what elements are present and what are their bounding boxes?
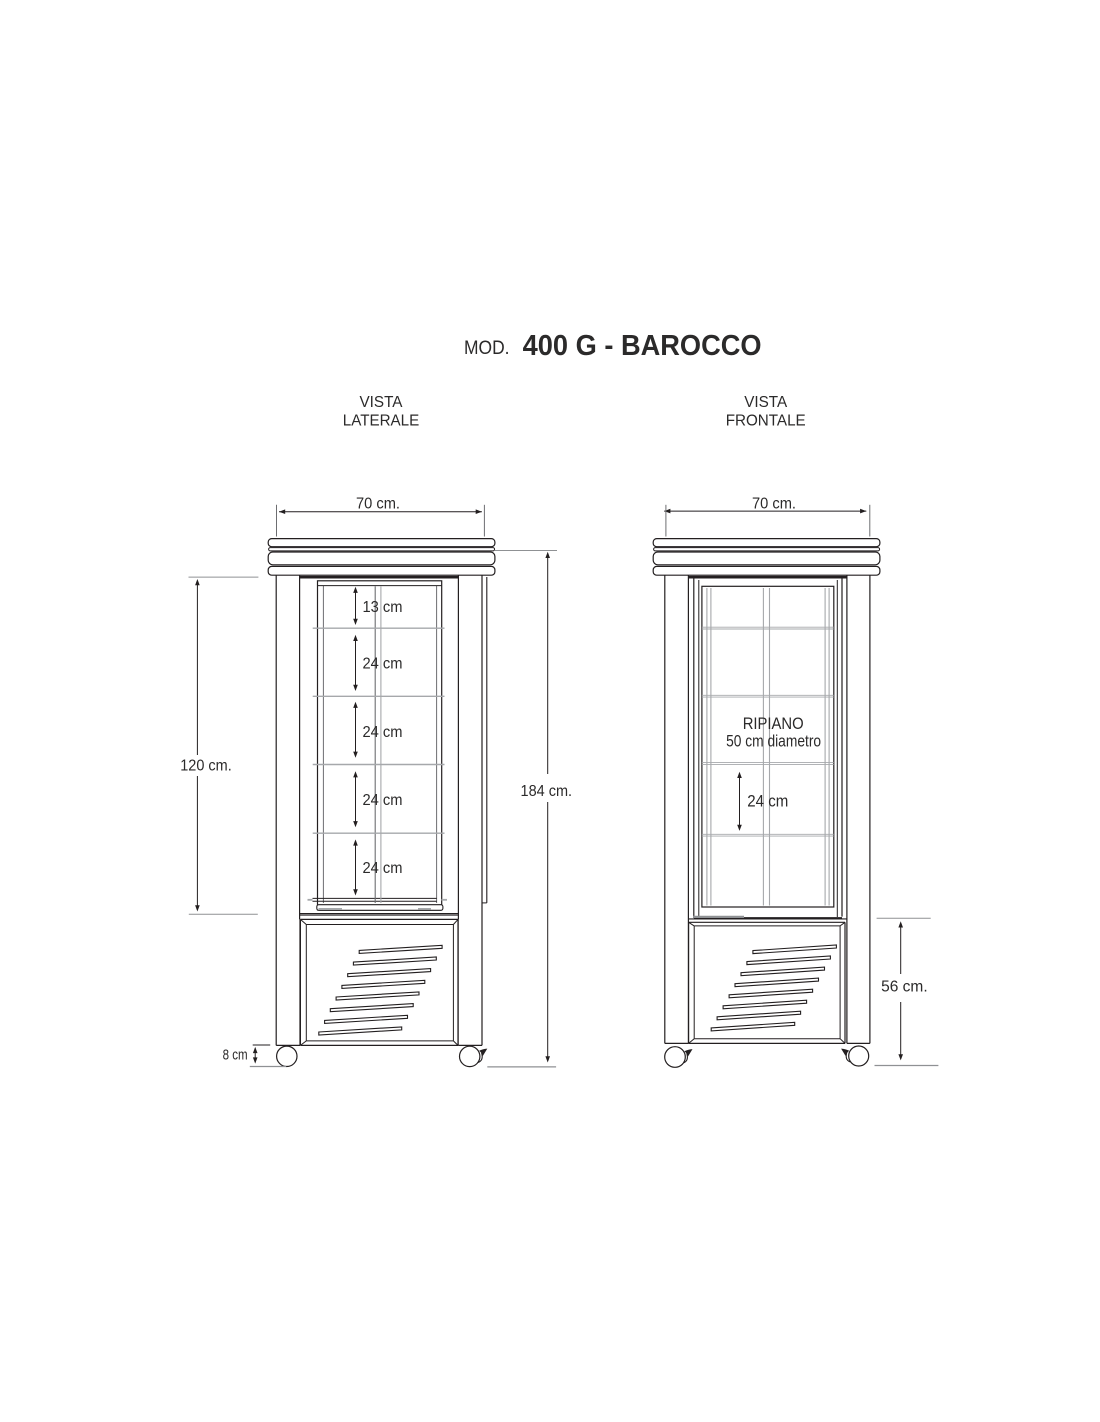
svg-text:24 cm: 24 cm [747,792,788,811]
svg-text:24 cm: 24 cm [363,860,403,877]
svg-text:70 cm.: 70 cm. [356,496,400,513]
svg-text:24 cm: 24 cm [363,656,403,673]
svg-text:24 cm: 24 cm [363,724,403,741]
svg-text:RIPIANO: RIPIANO [743,714,804,733]
svg-text:FRONTALE: FRONTALE [726,413,806,430]
svg-text:400 G - BAROCCO: 400 G - BAROCCO [523,330,762,362]
svg-text:LATERALE: LATERALE [343,413,420,430]
svg-text:VISTA: VISTA [360,394,404,411]
svg-text:120 cm.: 120 cm. [180,757,232,774]
svg-text:50 cm diametro: 50 cm diametro [726,731,821,750]
svg-text:8 cm: 8 cm [223,1047,248,1063]
svg-text:24 cm: 24 cm [363,792,403,809]
svg-text:184 cm.: 184 cm. [521,783,573,800]
svg-text:MOD.: MOD. [464,338,510,359]
svg-text:VISTA: VISTA [744,394,788,411]
svg-text:70 cm.: 70 cm. [752,496,796,513]
svg-text:13 cm: 13 cm [363,599,403,616]
svg-text:56 cm.: 56 cm. [881,978,928,995]
